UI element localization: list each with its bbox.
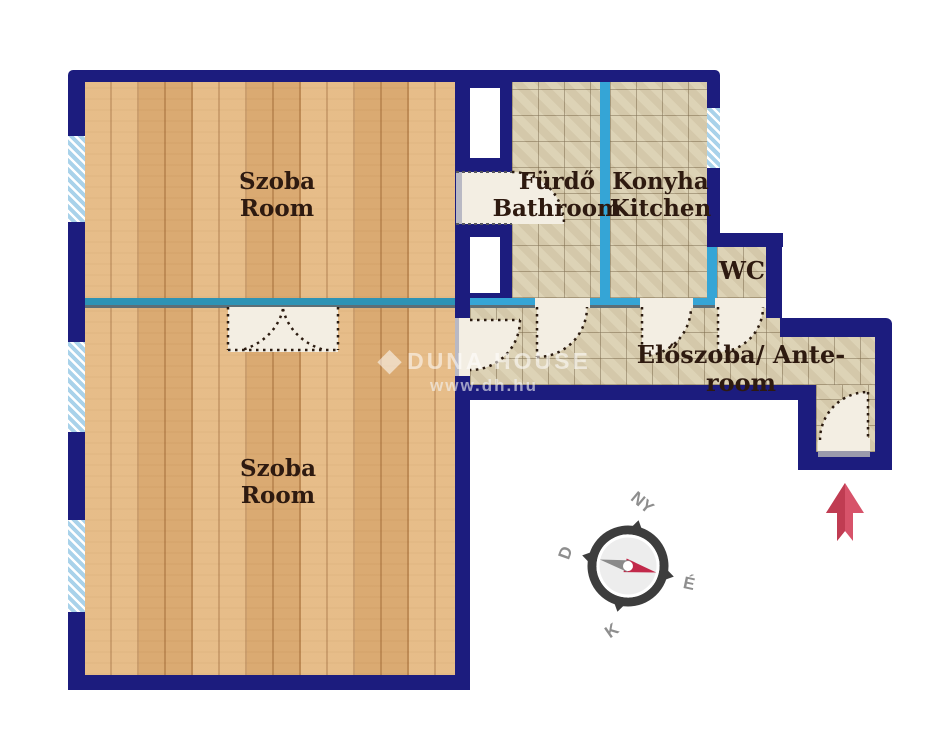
room2-label: Szoba Room [156,455,400,509]
compass-label-north: É [682,573,697,594]
entrance-arrow-icon [826,483,864,541]
compass-label-east: K [601,619,623,642]
room2-label-en: Room [156,482,400,509]
hall-label: Előszoba/ Ante-room [610,341,872,397]
kitchen-label-en: Kitchen [573,195,748,222]
compass-label-south: D [555,544,577,562]
watermark-url: www.dh.hu [430,376,638,396]
room1-label: Szoba Room [155,168,399,222]
door-opening [535,298,590,308]
door-opening [715,298,766,308]
kitchen-label-hu: Konyha [573,168,748,195]
entrance-door-shadow [818,451,870,457]
entrance-door-slab [818,438,870,451]
kitchen-label: Konyha Kitchen [573,168,748,222]
diamond-logo-icon: ◆ [378,346,401,376]
door-reveal [456,172,462,224]
watermark-brand: DUNA HOUSE [407,348,591,375]
floor-plan: NY D É K Szoba Room Szoba Room Fürdő Bat… [0,0,935,735]
watermark: ◆ DUNA HOUSE www.dh.hu [378,346,638,396]
compass-label-west: NY [627,488,658,518]
room2-label-hu: Szoba [156,455,400,482]
room1-label-en: Room [155,195,399,222]
room1-label-hu: Szoba [155,168,399,195]
wc-label: WC [712,257,772,285]
compass-rose-icon: NY D É K [555,488,697,642]
door-opening [640,298,693,308]
double-door-leaf [228,307,338,352]
